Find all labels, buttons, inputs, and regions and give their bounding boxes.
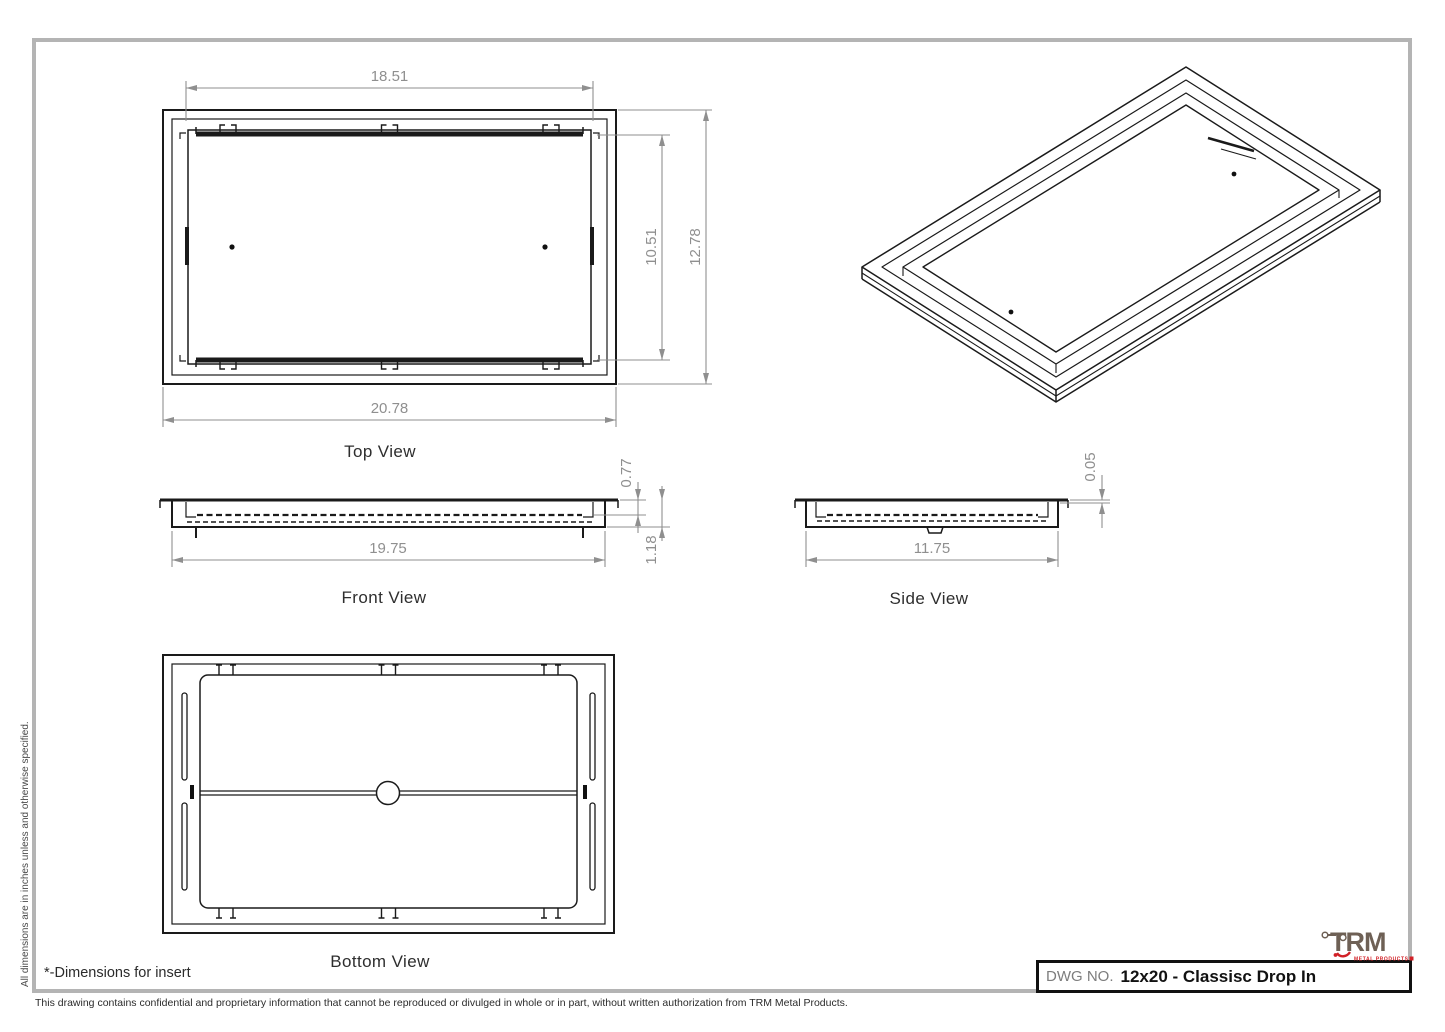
dim-top-outer-height: 12.78 (687, 228, 704, 266)
dim-front-width: 19.75 (369, 540, 407, 557)
dim-top-outer-width: 20.78 (371, 400, 409, 417)
side-view-outline (795, 500, 1068, 533)
dim-side-flange-height: 0.05 (1082, 452, 1099, 481)
isometric-view-drawing (850, 50, 1420, 410)
drawing-sheet: 18.51 20.78 10.51 12.78 Top View (0, 0, 1445, 1032)
confidentiality-note: This drawing contains confidential and p… (35, 997, 848, 1009)
top-view-drawing: 18.51 20.78 10.51 12.78 (150, 55, 730, 435)
front-view-drawing: 0.77 1.18 19.75 (150, 445, 730, 580)
bottom-view-outline (163, 655, 614, 933)
front-view-label: Front View (284, 588, 484, 608)
logo-square-icon (1410, 957, 1414, 961)
side-view-label: Side View (829, 589, 1029, 609)
front-view: 0.77 1.18 19.75 (150, 445, 730, 580)
bottom-view (150, 645, 630, 945)
dwg-no-value: 12x20 - Classisc Drop In (1121, 967, 1317, 987)
isometric-outline (862, 67, 1380, 402)
front-view-outline (160, 500, 618, 538)
dim-side-width: 11.75 (914, 540, 950, 557)
units-note: All dimensions are in inches unless and … (20, 721, 31, 987)
trm-logo: TRM METAL PRODUCTS (1320, 924, 1418, 964)
logo-red-dot-icon (1334, 953, 1338, 957)
front-view-dimensions (172, 482, 670, 567)
logo-tagline: METAL PRODUCTS (1354, 957, 1409, 963)
side-view-drawing: 0.05 11.75 (780, 445, 1125, 580)
logo-wordmark: TRM (1330, 927, 1385, 957)
bottom-view-label: Bottom View (280, 952, 480, 972)
dim-front-insert-depth: 0.77 (618, 458, 635, 487)
dwg-no-label: DWG NO. (1046, 968, 1114, 985)
isometric-view (850, 50, 1420, 410)
dim-top-inner-height: 10.51 (643, 228, 660, 266)
trm-logo-graphic: TRM METAL PRODUCTS (1320, 924, 1418, 964)
dim-top-inner-width: 18.51 (371, 68, 409, 85)
top-view: 18.51 20.78 10.51 12.78 (150, 55, 730, 435)
top-view-outline (163, 110, 616, 384)
insert-dimensions-note: *-Dimensions for insert (44, 965, 191, 981)
title-block: DWG NO. 12x20 - Classisc Drop In (1036, 960, 1412, 993)
dim-front-overall-depth: 1.18 (643, 535, 660, 564)
side-view: 0.05 11.75 (780, 445, 1125, 580)
logo-node-icon (1340, 935, 1346, 941)
bottom-view-drawing (150, 645, 630, 945)
logo-node-icon (1322, 932, 1328, 938)
